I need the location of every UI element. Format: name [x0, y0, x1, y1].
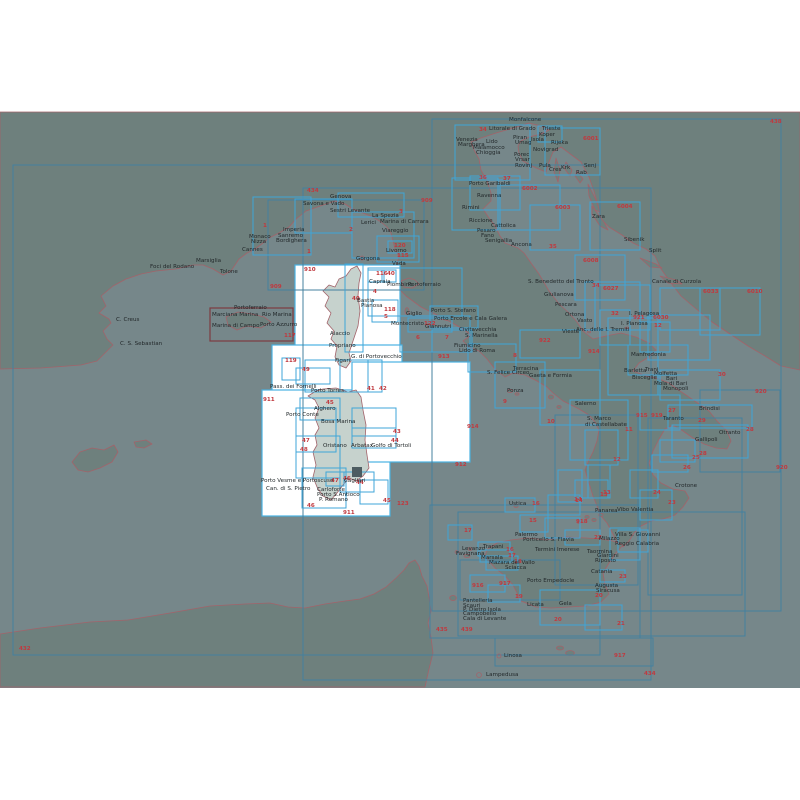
place-label: Giannutri: [425, 324, 451, 330]
chart-number: 434: [307, 188, 319, 194]
place-label: S. Benedetto del Tronto: [528, 279, 594, 285]
chart-number: 2: [349, 227, 353, 233]
chart-number: 6001: [583, 136, 599, 142]
place-label: Trapani: [482, 544, 504, 550]
place-label: I. Pelagosa: [629, 311, 659, 317]
place-label: Tolone: [219, 269, 238, 275]
place-label: Umag: [515, 140, 532, 146]
chart-number: 41: [367, 386, 375, 392]
chart-number: 917: [614, 653, 626, 659]
chart-number: 910: [304, 267, 316, 273]
place-label: P. Romano: [319, 497, 349, 503]
chart-number: 6033: [703, 289, 719, 295]
chart-number: 119: [285, 358, 297, 364]
place-label: I. Pianosa: [621, 321, 648, 327]
island-aeolian-3: [592, 518, 596, 521]
place-label: Manfredonia: [631, 352, 666, 358]
chart-number: 915: [636, 413, 648, 419]
chart-number: 23: [619, 574, 627, 580]
place-label: Aiaccio: [330, 331, 351, 337]
place-label: Senigallia: [485, 238, 512, 244]
place-label: Cagliari: [344, 478, 366, 484]
chart-number: 12: [654, 323, 662, 329]
chart-number: 8: [513, 353, 517, 359]
place-label: Porto Azzurro: [260, 322, 298, 328]
chart-number: 28: [699, 451, 707, 457]
chart-number: 432: [19, 646, 31, 652]
chart-number: 24: [653, 490, 661, 496]
place-label: Siracusa: [596, 588, 620, 594]
place-label: Taranto: [662, 416, 684, 422]
chart-number: 916: [472, 583, 484, 589]
chart-number: 914: [588, 349, 600, 355]
chart-number: 438: [770, 119, 782, 125]
place-label: Ponza: [507, 388, 524, 394]
place-label: Vada: [392, 261, 406, 267]
place-label: Lampedusa: [486, 672, 518, 678]
place-label: Lido di Roma: [459, 348, 495, 354]
chart-number: 45: [383, 498, 391, 504]
chart-number: 911: [343, 510, 355, 516]
chart-number: 6010: [747, 289, 763, 295]
chart-number: 909: [270, 284, 282, 290]
chart-number: 6008: [583, 258, 599, 264]
place-label: Gallipoli: [695, 437, 718, 443]
chart-number: 27: [668, 408, 676, 414]
place-label: Pianosa: [361, 303, 383, 309]
place-label: Golfo di Tortoli: [371, 443, 412, 449]
place-label: G. di Portovecchio: [351, 354, 402, 360]
place-label: Marina di Campo: [212, 323, 260, 329]
place-label: Villa S. Giovanni: [615, 532, 661, 538]
catalog-page: 4344344384324354399179099099109119119139…: [0, 0, 800, 800]
place-label: Rimini: [462, 205, 480, 211]
chart-number: 49: [302, 367, 310, 373]
place-label: Portoferraio: [234, 305, 267, 311]
chart-number: 12: [613, 457, 621, 463]
place-label: Senj: [584, 163, 597, 169]
place-label: Cala di Levante: [463, 616, 507, 622]
place-label: Litorale di Grado: [489, 126, 536, 132]
place-label: Porto Garibaldi: [469, 181, 511, 187]
chart-number: 123: [397, 501, 409, 507]
place-label: Ravenna: [477, 193, 501, 199]
chart-number: 19: [515, 594, 523, 600]
chart-number: 6: [416, 335, 420, 341]
chart-number: 13: [603, 490, 611, 496]
place-label: Marciana Marina: [212, 312, 258, 318]
chart-number: 14: [575, 498, 583, 504]
chart-number: 6004: [617, 204, 633, 210]
chart-number: 29: [698, 418, 706, 424]
chart-number: 47: [302, 438, 310, 444]
chart-number: 48: [300, 447, 308, 453]
chart-number: 117: [284, 333, 296, 339]
place-label: Cannes: [242, 247, 263, 253]
place-label: Linosa: [504, 653, 522, 659]
chart-number: 34: [479, 127, 487, 133]
place-label: Gaeta e Formia: [529, 373, 572, 379]
chart-index-map: 4344344384324354399179099099109119119139…: [0, 0, 800, 800]
place-label: Crotone: [675, 483, 698, 489]
place-label: Ustica: [509, 501, 526, 507]
chart-number: 15: [529, 518, 537, 524]
place-label: Rovinj: [515, 163, 532, 169]
place-label: Krk: [561, 165, 571, 171]
place-label: Lerici: [361, 220, 376, 226]
place-label: Bordighera: [276, 238, 307, 244]
place-label: Vasto: [577, 318, 593, 324]
island-malta: [556, 646, 563, 650]
chart-number: 435: [436, 627, 448, 633]
place-label: Catania: [591, 569, 612, 575]
place-label: Rab: [576, 170, 587, 176]
place-label: Canale di Curzola: [652, 279, 701, 285]
place-label: Porto Ercole e Cala Galera: [434, 316, 507, 322]
place-label: Porto Torres: [311, 388, 344, 394]
place-label: Porto S. Stefano: [431, 308, 477, 314]
place-label: S. Marinella: [465, 333, 498, 339]
place-label: Giglio: [406, 311, 423, 317]
place-label: Chioggia: [476, 150, 501, 156]
place-label: Licata: [527, 602, 544, 608]
place-label: Porto Conte: [286, 412, 319, 418]
place-label: Ancona: [511, 242, 532, 248]
chart-number: 43: [393, 429, 401, 435]
chart-number: 42: [379, 386, 387, 392]
place-label: Zara: [592, 214, 605, 220]
chart-number: 26: [683, 465, 691, 471]
chart-number: 6002: [522, 186, 538, 192]
chart-number: 40: [387, 271, 395, 277]
place-label: Split: [649, 248, 662, 254]
chart-number: 911: [263, 397, 275, 403]
place-label: Figari: [335, 358, 351, 364]
place-label: Riposto: [595, 558, 617, 564]
place-label: Panarea: [595, 508, 618, 514]
place-label: Pescara: [555, 302, 577, 308]
chart-number: 118: [384, 307, 396, 313]
chart-number: 9: [503, 399, 507, 405]
chart-number: 10: [547, 419, 555, 425]
place-label: Livorno: [386, 248, 407, 254]
place-label: Giulianova: [544, 292, 574, 298]
place-label: Savona e Vado: [303, 201, 345, 207]
chart-number: 17: [464, 528, 472, 534]
place-label: Otranto: [719, 430, 741, 436]
chart-number: 920: [755, 389, 767, 395]
chart-number: 6003: [555, 205, 571, 211]
place-label: Riccione: [469, 218, 493, 224]
place-label: Bosa Marina: [321, 419, 355, 425]
place-label: Porto Vesme e Portoscuso: [261, 478, 334, 484]
chart-number: 920: [776, 465, 788, 471]
chart-number: 16: [532, 501, 540, 507]
place-label: Propriano: [329, 343, 356, 349]
place-label: Brindisi: [699, 406, 720, 412]
place-label: Gela: [559, 601, 572, 607]
place-label: Gorgona: [356, 256, 380, 262]
place-label: Vibo Valentia: [617, 507, 654, 513]
chart-number: 21: [617, 621, 625, 627]
place-label: Sciacca: [505, 565, 526, 571]
place-label: Foci del Rodano: [150, 264, 195, 270]
chart-number: 6027: [603, 286, 619, 292]
place-label: Cres: [549, 167, 562, 173]
chart-number: 914: [467, 424, 479, 430]
selected-chart-marker: [352, 467, 362, 477]
place-label: Montecristo: [391, 321, 424, 327]
place-label: Reggio Calabria: [615, 541, 659, 547]
place-label: Porticello S. Flavia: [523, 537, 574, 543]
island-capri: [557, 405, 561, 408]
chart-number: 35: [549, 244, 557, 250]
place-label: Genova: [330, 194, 351, 200]
chart-number: 434: [644, 671, 656, 677]
island-ischia: [548, 395, 553, 399]
place-label: Salerno: [575, 401, 597, 407]
place-label: di Castellabate: [585, 422, 627, 428]
chart-number: 922: [539, 338, 551, 344]
place-label: Terracina: [512, 366, 538, 372]
chart-number: 32: [611, 311, 619, 317]
chart-number: 23: [668, 500, 676, 506]
chart-number: 439: [461, 627, 473, 633]
place-label: Rijeka: [551, 140, 568, 146]
place-label: Porto Empedocle: [527, 578, 575, 584]
place-label: Portoferraio: [408, 282, 441, 288]
chart-number: 3: [399, 209, 403, 215]
place-label: Rio Marina: [262, 312, 292, 318]
place-label: Viareggio: [382, 228, 409, 234]
place-label: Barletta: [624, 368, 646, 374]
place-label: Anc. delle I. Tremiti: [576, 327, 630, 333]
place-label: Oristano: [323, 443, 347, 449]
chart-number: 20: [554, 617, 562, 623]
chart-number: 918: [576, 519, 588, 525]
place-label: Novigrad: [533, 147, 559, 153]
chart-number: 912: [455, 462, 467, 468]
chart-number: 25: [692, 455, 700, 461]
chart-number: 1: [307, 249, 311, 255]
chart-number: 5: [384, 314, 388, 320]
chart-number: 919: [651, 413, 663, 419]
place-label: Nizza: [251, 239, 266, 245]
chart-number: 4: [373, 289, 377, 295]
place-label: Monopoli: [663, 386, 689, 392]
place-label: C. Creus: [116, 317, 140, 323]
place-label: Termini Imerese: [534, 547, 580, 553]
place-label: Marsiglia: [196, 258, 221, 264]
chart-number: 46: [307, 503, 315, 509]
place-label: Can. di S. Pietro: [266, 486, 311, 492]
chart-number: 917: [499, 581, 511, 587]
place-label: Isola: [531, 137, 544, 143]
place-label: C. S. Sebastian: [120, 341, 163, 347]
chart-number: 909: [421, 198, 433, 204]
place-label: Pass. dei Fornelli: [270, 384, 317, 390]
place-label: Sibenik: [624, 237, 645, 243]
chart-number: 7: [445, 335, 449, 341]
place-label: Sestri Levante: [330, 208, 371, 214]
place-label: Monfalcone: [509, 117, 542, 123]
chart-number: 30: [718, 372, 726, 378]
chart-number: 28: [746, 427, 754, 433]
place-label: Marina di Carrara: [380, 219, 429, 225]
chart-number: 1: [263, 223, 267, 229]
island-pantelleria: [450, 595, 457, 600]
chart-number: 913: [438, 354, 450, 360]
